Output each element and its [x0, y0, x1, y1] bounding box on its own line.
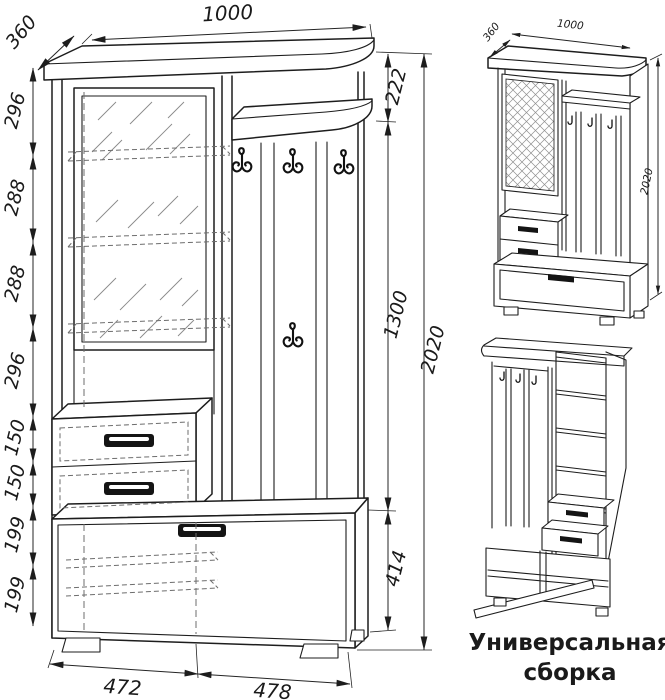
dim-label-depth: 360 — [1, 11, 41, 53]
dim-label-left-1: 296 — [0, 90, 30, 131]
furniture-technical-drawing: 296 288 288 296 150 150 199 199 1000 360… — [0, 0, 665, 700]
cabinet-foot — [350, 630, 364, 641]
coat-hook-icon — [233, 148, 252, 171]
coat-hook-icon — [335, 150, 354, 173]
canopy-top-panel — [44, 38, 374, 80]
iso-coat-hook-icon — [568, 116, 612, 128]
dim-label-left-4: 296 — [0, 350, 30, 391]
dim-label-bottom-right: 478 — [253, 678, 293, 700]
coat-hook-icon — [284, 323, 303, 346]
dim-label-right-3: 414 — [381, 548, 411, 589]
assembly-caption-line1: Универсальная — [468, 630, 665, 656]
assembly-open-drawer — [542, 520, 608, 556]
dim-label-left-3: 288 — [0, 263, 30, 304]
assembly-caption-line2: сборка — [523, 660, 616, 686]
middle-divider-panel — [222, 76, 232, 506]
coat-hook-icon — [284, 149, 303, 172]
iso-canopy — [488, 46, 646, 76]
right-side-panel — [358, 72, 364, 504]
flap-door-handle — [178, 524, 226, 537]
bottom-cabinet — [52, 498, 368, 658]
technical-drawing-page: 296 288 288 296 150 150 199 199 1000 360… — [0, 0, 665, 700]
iso-dim-depth: 360 — [481, 20, 503, 43]
dim-label-right-1: 222 — [381, 66, 411, 107]
main-front-view: 296 288 288 296 150 150 199 199 1000 360… — [0, 0, 450, 700]
mirror — [74, 88, 214, 350]
dim-label-left-5: 150 — [0, 417, 30, 458]
iso-mirror — [502, 74, 558, 196]
drawer-handle — [104, 434, 154, 447]
assembly-bottom-box — [474, 548, 610, 618]
dim-label-left-8: 199 — [0, 574, 30, 615]
top-width-dimension: 1000 — [82, 0, 372, 44]
dim-label-right-2: 1300 — [380, 288, 413, 340]
total-height-dimension: 2020 — [417, 54, 450, 650]
assembly-coat-hook-icon — [500, 372, 536, 384]
dim-label-left-2: 288 — [0, 177, 30, 218]
dim-label-top-width: 1000 — [202, 0, 254, 26]
dim-label-left-6: 150 — [0, 462, 30, 503]
iso-front-view: 360 1000 2020 — [481, 18, 662, 325]
assembly-right-side — [606, 352, 626, 562]
assembly-slat-panel — [492, 362, 548, 533]
drawer-handle — [104, 482, 154, 495]
iso-shelf — [562, 90, 640, 109]
assembly-hook-rail — [494, 366, 548, 371]
dim-label-left-7: 199 — [0, 514, 30, 555]
iso-divider — [562, 80, 566, 251]
iso-bottom-cabinet — [494, 253, 648, 325]
assembly-iso-view — [474, 338, 632, 618]
dim-label-bottom-left: 472 — [103, 674, 143, 700]
dim-label-total-height: 2020 — [417, 323, 450, 375]
cabinet-foot — [300, 644, 338, 658]
iso-slats — [576, 112, 621, 256]
hook-section-shelf — [232, 99, 372, 140]
assembly-caption: Универсальная сборка — [468, 630, 665, 686]
iso-dim-width: 1000 — [556, 18, 584, 33]
left-dimension-chain: 296 288 288 296 150 150 199 199 — [0, 68, 33, 626]
cabinet-foot — [62, 638, 100, 652]
